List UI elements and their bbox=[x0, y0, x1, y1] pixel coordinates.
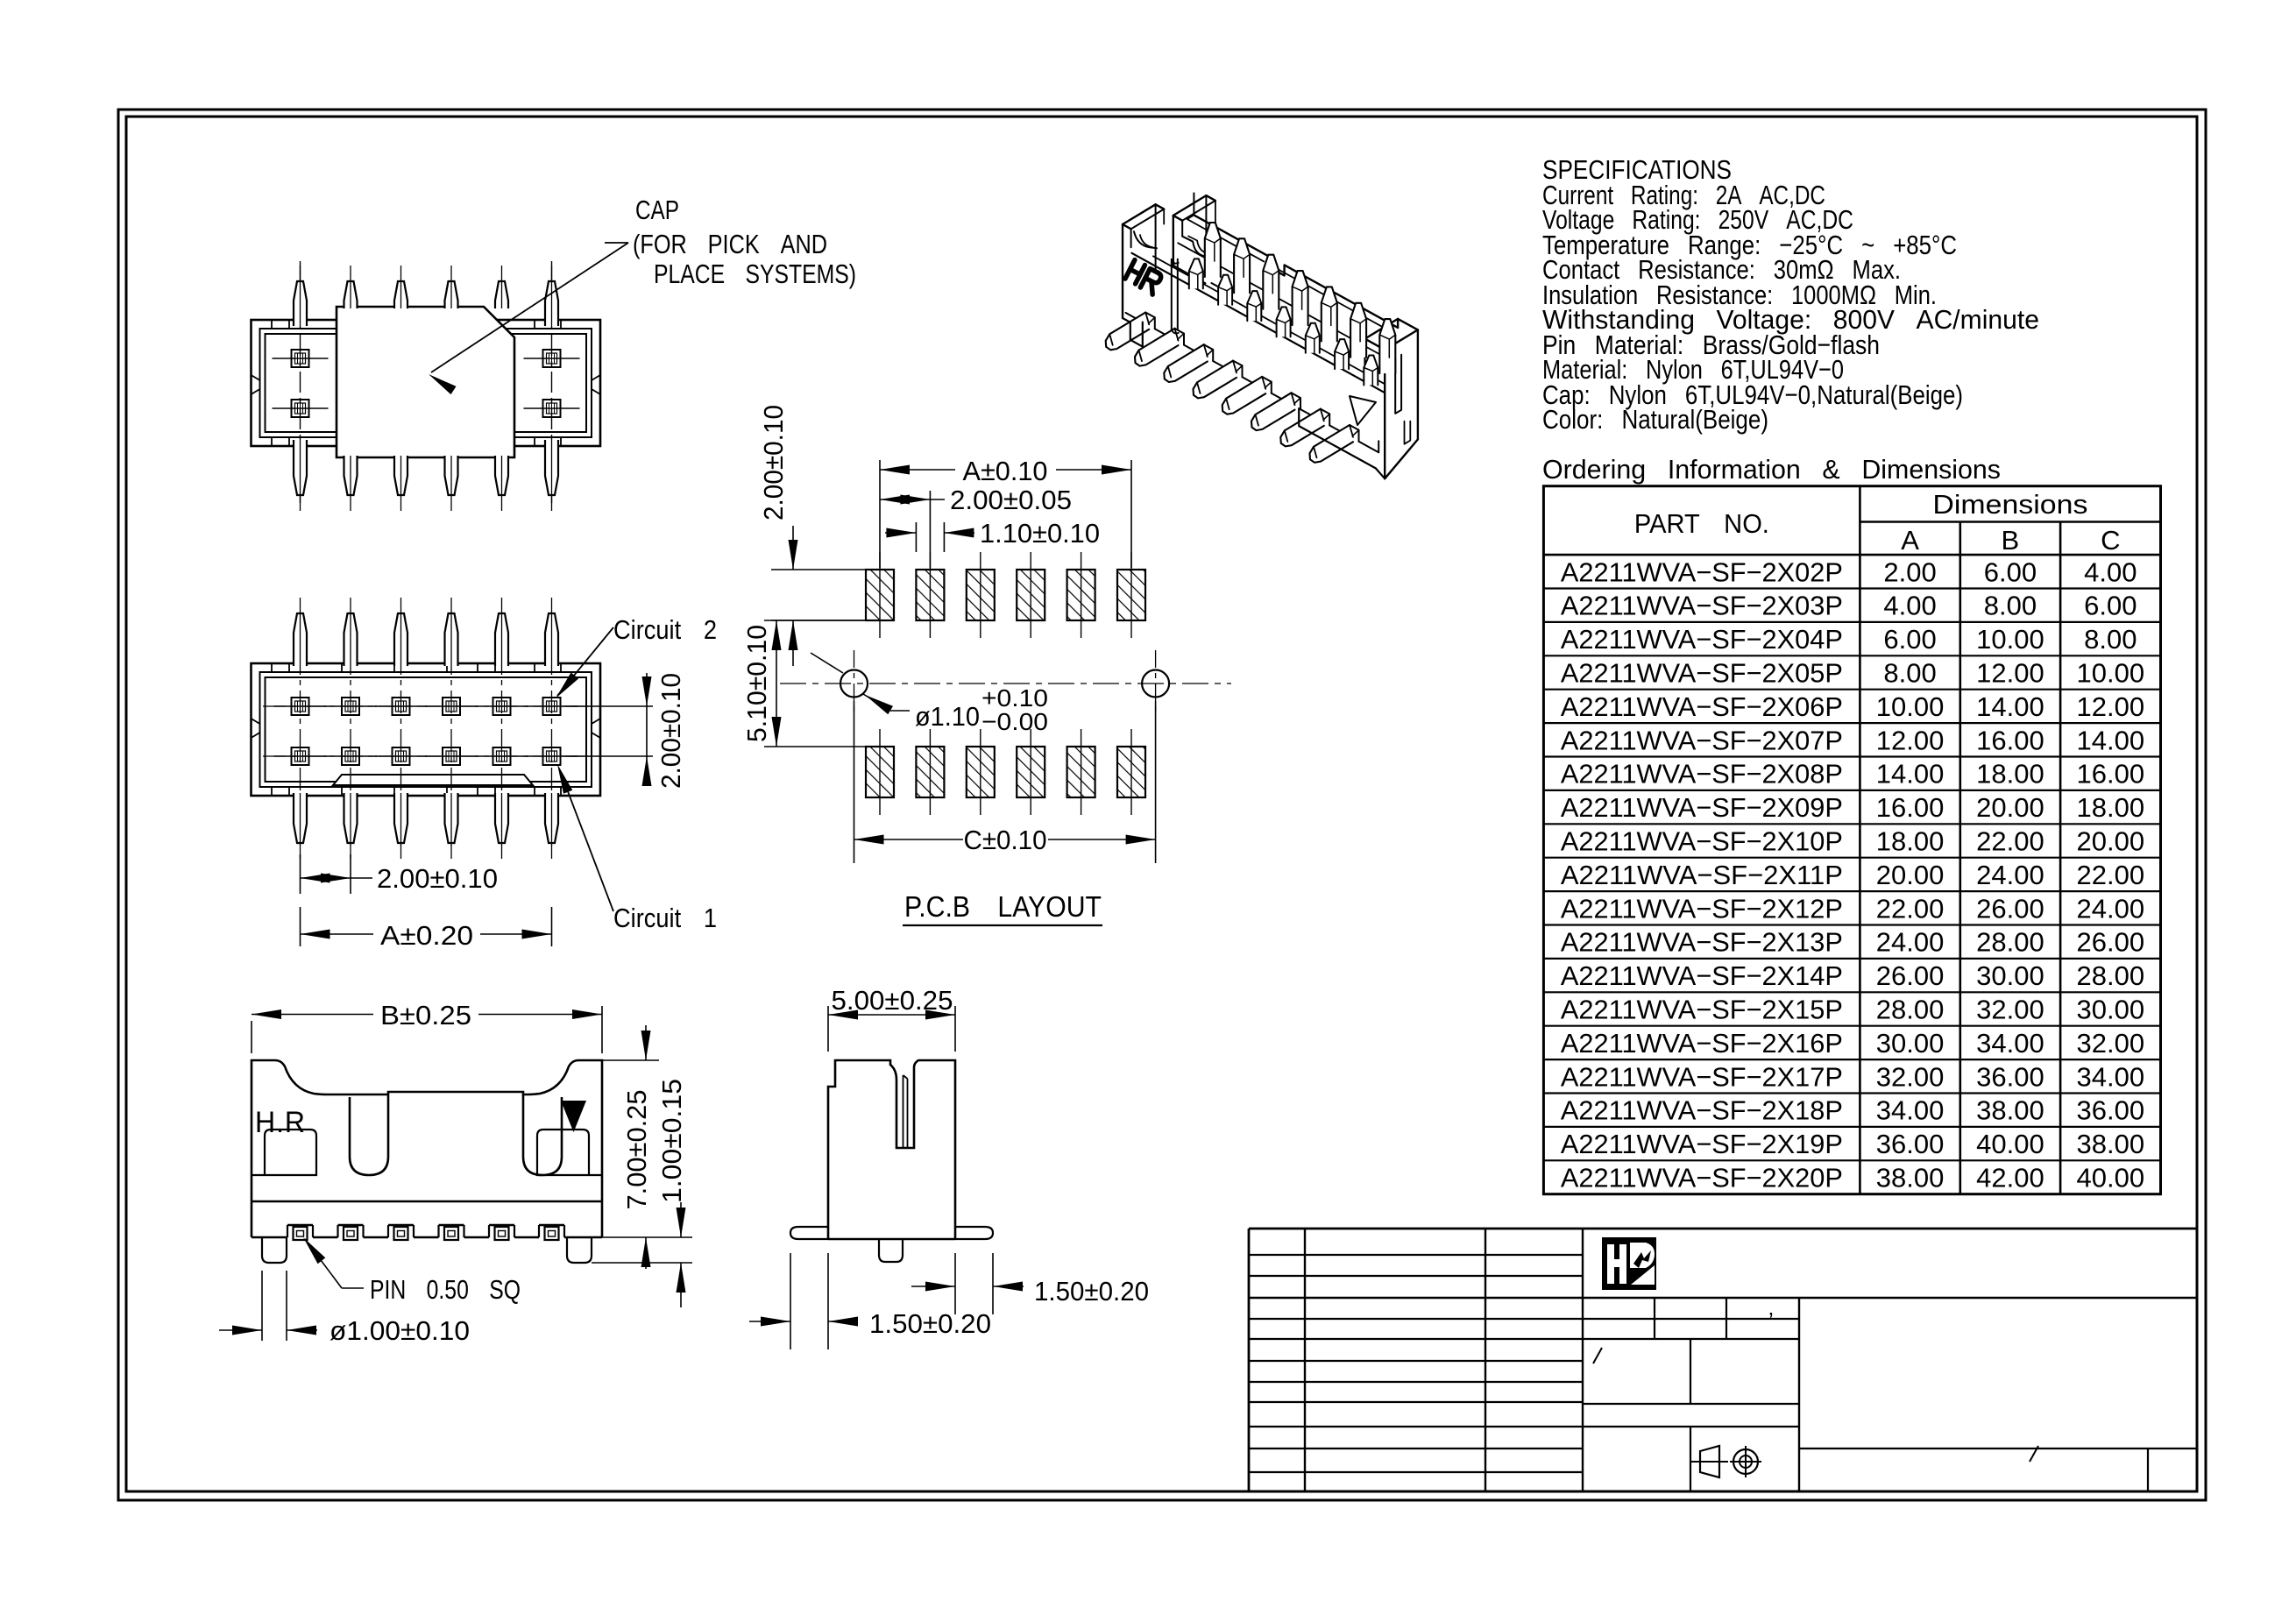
svg-text:38.00: 38.00 bbox=[1976, 1095, 2044, 1126]
svg-text:A2211WVA−SF−2X05P: A2211WVA−SF−2X05P bbox=[1561, 658, 1843, 689]
svg-text:A2211WVA−SF−2X09P: A2211WVA−SF−2X09P bbox=[1561, 792, 1843, 823]
svg-text:5.00±0.25: 5.00±0.25 bbox=[832, 985, 953, 1016]
svg-text:−0.00: −0.00 bbox=[981, 708, 1048, 735]
svg-text:8.00: 8.00 bbox=[1984, 591, 2037, 621]
svg-text:34.00: 34.00 bbox=[2077, 1061, 2145, 1092]
svg-text:24.00: 24.00 bbox=[1876, 927, 1945, 958]
svg-text:ø1.10: ø1.10 bbox=[915, 701, 980, 732]
svg-text:A2211WVA−SF−2X20P: A2211WVA−SF−2X20P bbox=[1561, 1163, 1843, 1193]
svg-text:36.00: 36.00 bbox=[1876, 1129, 1945, 1159]
svg-text:22.00: 22.00 bbox=[1876, 893, 1945, 924]
svg-text:20.00: 20.00 bbox=[1876, 860, 1945, 890]
svg-text:32.00: 32.00 bbox=[2077, 1028, 2145, 1059]
svg-text:A2211WVA−SF−2X15P: A2211WVA−SF−2X15P bbox=[1561, 995, 1843, 1025]
svg-text:A2211WVA−SF−2X04P: A2211WVA−SF−2X04P bbox=[1561, 624, 1843, 655]
svg-text:28.00: 28.00 bbox=[1876, 995, 1945, 1025]
svg-text:18.00: 18.00 bbox=[1876, 826, 1945, 857]
svg-text:2.00±0.10: 2.00±0.10 bbox=[758, 405, 789, 521]
svg-text:38.00: 38.00 bbox=[1876, 1163, 1945, 1193]
svg-text:2.00±0.10: 2.00±0.10 bbox=[655, 673, 686, 789]
svg-text:24.00: 24.00 bbox=[1976, 860, 2044, 890]
svg-text:CAP: CAP bbox=[635, 195, 679, 225]
svg-text:20.00: 20.00 bbox=[2077, 826, 2145, 857]
svg-text:A2211WVA−SF−2X10P: A2211WVA−SF−2X10P bbox=[1561, 826, 1843, 857]
svg-text:2.00: 2.00 bbox=[1883, 556, 1936, 587]
svg-text:12.00: 12.00 bbox=[1876, 725, 1945, 755]
svg-text:B±0.25: B±0.25 bbox=[380, 1000, 471, 1031]
svg-text:18.00: 18.00 bbox=[2077, 792, 2145, 823]
svg-text:P.C.B LAYOUT: P.C.B LAYOUT bbox=[904, 890, 1102, 923]
svg-text:20.00: 20.00 bbox=[1976, 792, 2044, 823]
svg-text:A2211WVA−SF−2X07P: A2211WVA−SF−2X07P bbox=[1561, 725, 1843, 755]
svg-text:34.00: 34.00 bbox=[1876, 1095, 1945, 1126]
svg-text:30.00: 30.00 bbox=[1976, 960, 2044, 991]
svg-text:A2211WVA−SF−2X12P: A2211WVA−SF−2X12P bbox=[1561, 893, 1843, 924]
svg-text:A: A bbox=[1901, 525, 1919, 556]
svg-text:18.00: 18.00 bbox=[1976, 759, 2044, 790]
svg-text:38.00: 38.00 bbox=[2077, 1129, 2145, 1159]
svg-text:6.00: 6.00 bbox=[1984, 556, 2037, 587]
svg-text:12.00: 12.00 bbox=[1976, 658, 2044, 689]
svg-text:16.00: 16.00 bbox=[1876, 792, 1945, 823]
svg-text:14.00: 14.00 bbox=[1976, 691, 2044, 722]
svg-text:1.00±0.15: 1.00±0.15 bbox=[656, 1079, 687, 1203]
svg-text:30.00: 30.00 bbox=[2077, 995, 2145, 1025]
svg-text:A2211WVA−SF−2X08P: A2211WVA−SF−2X08P bbox=[1561, 759, 1843, 790]
svg-text:8.00: 8.00 bbox=[2084, 624, 2137, 655]
svg-text:Color: Natural(Beige): Color: Natural(Beige) bbox=[1542, 404, 1768, 435]
svg-text:ø1.00±0.10: ø1.00±0.10 bbox=[330, 1315, 470, 1346]
svg-text:32.00: 32.00 bbox=[1976, 995, 2044, 1025]
svg-text:A±0.20: A±0.20 bbox=[380, 920, 473, 951]
svg-text:10.00: 10.00 bbox=[1976, 624, 2044, 655]
svg-text:A2211WVA−SF−2X11P: A2211WVA−SF−2X11P bbox=[1561, 860, 1843, 890]
svg-text:7.00±0.25: 7.00±0.25 bbox=[621, 1090, 652, 1210]
svg-text:Dimensions: Dimensions bbox=[1932, 489, 2087, 520]
svg-text:A2211WVA−SF−2X06P: A2211WVA−SF−2X06P bbox=[1561, 691, 1843, 722]
svg-text:40.00: 40.00 bbox=[2077, 1163, 2145, 1193]
svg-text:14.00: 14.00 bbox=[1876, 759, 1945, 790]
svg-text:A2211WVA−SF−2X03P: A2211WVA−SF−2X03P bbox=[1561, 591, 1843, 621]
svg-text:A2211WVA−SF−2X19P: A2211WVA−SF−2X19P bbox=[1561, 1129, 1843, 1159]
svg-text:8.00: 8.00 bbox=[1883, 658, 1936, 689]
svg-text:PLACE SYSTEMS): PLACE SYSTEMS) bbox=[654, 259, 856, 289]
svg-text:A2211WVA−SF−2X02P: A2211WVA−SF−2X02P bbox=[1561, 556, 1843, 587]
svg-text:(FOR PICK AND: (FOR PICK AND bbox=[633, 229, 827, 259]
svg-text:PIN 0.50 SQ: PIN 0.50 SQ bbox=[370, 1274, 521, 1305]
svg-text:34.00: 34.00 bbox=[1976, 1028, 2044, 1059]
svg-text:1.50±0.20: 1.50±0.20 bbox=[869, 1308, 991, 1339]
svg-text:12.00: 12.00 bbox=[2077, 691, 2145, 722]
svg-text:16.00: 16.00 bbox=[1976, 725, 2044, 755]
svg-text:H.R: H.R bbox=[255, 1106, 306, 1139]
svg-text:A2211WVA−SF−2X17P: A2211WVA−SF−2X17P bbox=[1561, 1061, 1843, 1092]
svg-text:26.00: 26.00 bbox=[2077, 927, 2145, 958]
svg-text:32.00: 32.00 bbox=[1876, 1061, 1945, 1092]
svg-text:A2211WVA−SF−2X18P: A2211WVA−SF−2X18P bbox=[1561, 1095, 1843, 1126]
svg-text:28.00: 28.00 bbox=[1976, 927, 2044, 958]
svg-text:36.00: 36.00 bbox=[1976, 1061, 2044, 1092]
svg-text:Circuit 1: Circuit 1 bbox=[613, 903, 717, 933]
svg-text:C±0.10: C±0.10 bbox=[964, 825, 1047, 855]
svg-text:’: ’ bbox=[1768, 1307, 1774, 1334]
svg-text:A2211WVA−SF−2X16P: A2211WVA−SF−2X16P bbox=[1561, 1028, 1843, 1059]
svg-text:24.00: 24.00 bbox=[2077, 893, 2145, 924]
svg-text:A2211WVA−SF−2X14P: A2211WVA−SF−2X14P bbox=[1561, 960, 1843, 991]
svg-text:30.00: 30.00 bbox=[1876, 1028, 1945, 1059]
svg-text:PART NO.: PART NO. bbox=[1634, 508, 1769, 539]
svg-text:22.00: 22.00 bbox=[1976, 826, 2044, 857]
svg-text:Ordering Information & Dime: Ordering Information & Dimensions bbox=[1542, 454, 2001, 485]
svg-text:22.00: 22.00 bbox=[2077, 860, 2145, 890]
svg-text:16.00: 16.00 bbox=[2077, 759, 2145, 790]
svg-text:26.00: 26.00 bbox=[1876, 960, 1945, 991]
svg-text:2.00±0.10: 2.00±0.10 bbox=[377, 863, 498, 894]
svg-text:B: B bbox=[2002, 525, 2020, 556]
svg-text:A±0.10: A±0.10 bbox=[963, 456, 1048, 486]
svg-text:10.00: 10.00 bbox=[1876, 691, 1945, 722]
svg-text:2.00±0.05: 2.00±0.05 bbox=[950, 485, 1072, 515]
svg-text:28.00: 28.00 bbox=[2077, 960, 2145, 991]
svg-text:36.00: 36.00 bbox=[2077, 1095, 2145, 1126]
svg-text:1.50±0.20: 1.50±0.20 bbox=[1034, 1276, 1149, 1307]
svg-text:40.00: 40.00 bbox=[1976, 1129, 2044, 1159]
svg-text:1.10±0.10: 1.10±0.10 bbox=[980, 518, 1100, 549]
svg-text:A2211WVA−SF−2X13P: A2211WVA−SF−2X13P bbox=[1561, 927, 1843, 958]
svg-text:4.00: 4.00 bbox=[2084, 556, 2137, 587]
svg-text:26.00: 26.00 bbox=[1976, 893, 2044, 924]
svg-text:C: C bbox=[2101, 525, 2120, 556]
svg-text:14.00: 14.00 bbox=[2077, 725, 2145, 755]
svg-text:10.00: 10.00 bbox=[2077, 658, 2145, 689]
svg-text:42.00: 42.00 bbox=[1976, 1163, 2044, 1193]
svg-text:6.00: 6.00 bbox=[2084, 591, 2137, 621]
svg-text:Circuit 2: Circuit 2 bbox=[613, 614, 717, 645]
svg-text:5.10±0.10: 5.10±0.10 bbox=[741, 625, 772, 742]
svg-text:6.00: 6.00 bbox=[1883, 624, 1936, 655]
svg-text:4.00: 4.00 bbox=[1883, 591, 1936, 621]
